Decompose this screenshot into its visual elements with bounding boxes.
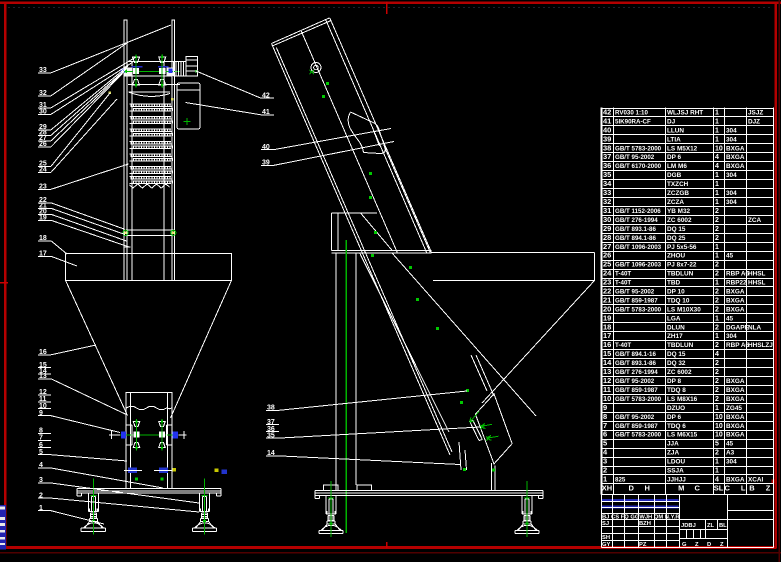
svg-text:2: 2: [715, 297, 719, 304]
svg-text:D: D: [628, 484, 634, 493]
svg-text:GB/T 1096-2003: GB/T 1096-2003: [615, 262, 662, 269]
svg-text:1: 1: [715, 172, 719, 179]
svg-text:GB/T 95-2002: GB/T 95-2002: [615, 414, 655, 421]
svg-text:SJ: SJ: [602, 521, 609, 527]
svg-text:BL: BL: [719, 523, 727, 529]
svg-text:GY: GY: [602, 542, 611, 548]
svg-text:D: D: [707, 542, 711, 548]
svg-text:XCAI: XCAI: [748, 476, 763, 483]
svg-text:2: 2: [715, 271, 719, 278]
svg-text:DP 10: DP 10: [667, 289, 685, 296]
svg-text:DJZ: DJZ: [748, 119, 760, 126]
svg-text:A3: A3: [726, 450, 735, 457]
svg-text:LS M10X30: LS M10X30: [667, 306, 701, 313]
svg-text:18: 18: [603, 322, 611, 331]
svg-text:GB/T 894.1-16: GB/T 894.1-16: [615, 351, 656, 358]
svg-text:12: 12: [603, 376, 611, 385]
svg-text:DP 6: DP 6: [667, 154, 682, 161]
svg-text:RBP A6: RBP A6: [726, 271, 750, 278]
svg-text:1: 1: [715, 315, 719, 322]
svg-text:5IK90RA-CF: 5IK90RA-CF: [615, 119, 651, 126]
svg-text:6: 6: [603, 430, 607, 439]
svg-text:4: 4: [715, 163, 719, 170]
svg-text:GB/T 1096-2003: GB/T 1096-2003: [615, 244, 662, 251]
svg-text:TXZCH: TXZCH: [667, 181, 689, 188]
svg-text:22: 22: [603, 287, 611, 296]
svg-text:BXGA: BXGA: [726, 423, 745, 430]
svg-text:20: 20: [603, 304, 611, 313]
svg-text:GB/T 894.1-86: GB/T 894.1-86: [615, 235, 656, 242]
svg-text:28: 28: [603, 233, 611, 242]
svg-text:G: G: [682, 542, 687, 548]
svg-text:31: 31: [603, 206, 611, 215]
svg-text:BXGA: BXGA: [726, 154, 745, 161]
svg-text:2: 2: [715, 226, 719, 233]
svg-text:PJ 8x7-22: PJ 8x7-22: [667, 262, 697, 269]
svg-text:4: 4: [715, 154, 719, 161]
svg-text:TBDLUN: TBDLUN: [667, 342, 694, 349]
svg-text:1: 1: [715, 253, 719, 260]
svg-text:27: 27: [603, 242, 611, 251]
svg-text:30: 30: [603, 215, 611, 224]
svg-text:45: 45: [726, 315, 734, 322]
svg-text:5: 5: [603, 439, 607, 448]
svg-text:BXGA: BXGA: [726, 163, 745, 170]
svg-text:1: 1: [715, 110, 719, 117]
svg-text:ZCZGB: ZCZGB: [667, 190, 689, 197]
svg-text:LS M5X12: LS M5X12: [667, 145, 698, 152]
svg-text:5: 5: [715, 441, 719, 448]
svg-text:1: 1: [715, 468, 719, 475]
svg-text:ZH17: ZH17: [667, 333, 683, 340]
svg-text:HHSL: HHSL: [748, 280, 765, 287]
svg-text:TDQ 10: TDQ 10: [667, 297, 690, 304]
svg-text:JJHJJ: JJHJJ: [667, 476, 686, 483]
svg-text:39: 39: [603, 134, 611, 143]
svg-text:2: 2: [715, 289, 719, 296]
svg-text:DQ 25: DQ 25: [667, 235, 686, 242]
svg-text:2: 2: [715, 378, 719, 385]
svg-text:2: 2: [715, 262, 719, 269]
svg-text:DGAPE: DGAPE: [726, 324, 749, 331]
svg-text:TBDLUN: TBDLUN: [667, 271, 694, 278]
svg-text:DQ 15: DQ 15: [667, 351, 686, 358]
svg-text:H: H: [644, 484, 649, 493]
svg-text:2: 2: [715, 369, 719, 376]
svg-text:14: 14: [603, 358, 612, 367]
svg-text:B: B: [749, 484, 755, 493]
svg-text:10: 10: [603, 394, 611, 403]
svg-text:ZC 6002: ZC 6002: [667, 369, 692, 376]
svg-text:ZJA: ZJA: [667, 450, 679, 457]
svg-text:T-40T: T-40T: [615, 342, 631, 349]
svg-text:JDBJ: JDBJ: [681, 523, 696, 529]
svg-text:DP 8: DP 8: [667, 378, 682, 385]
svg-text:2: 2: [715, 306, 719, 313]
svg-text:34: 34: [603, 179, 612, 188]
svg-text:41: 41: [603, 117, 611, 126]
svg-text:LM M6: LM M6: [667, 163, 687, 170]
svg-text:BXGA: BXGA: [726, 414, 745, 421]
svg-text:2: 2: [715, 450, 719, 457]
svg-text:GB/T 859-1987: GB/T 859-1987: [615, 423, 658, 430]
svg-text:ZCA: ZCA: [748, 217, 762, 224]
svg-text:BXGA: BXGA: [726, 145, 745, 152]
svg-text:32: 32: [603, 197, 611, 206]
svg-text:17: 17: [603, 331, 611, 340]
svg-text:GB/T 5783-2000: GB/T 5783-2000: [615, 306, 662, 313]
svg-text:19: 19: [603, 313, 611, 322]
svg-text:2: 2: [603, 466, 607, 475]
svg-text:C: C: [724, 484, 730, 493]
svg-text:BXGA: BXGA: [726, 289, 745, 296]
svg-text:304: 304: [726, 199, 737, 206]
svg-text:GB/T 95-2002: GB/T 95-2002: [615, 378, 655, 385]
svg-text:2: 2: [715, 387, 719, 394]
svg-text:BXGA: BXGA: [726, 297, 745, 304]
svg-text:304: 304: [726, 172, 737, 179]
svg-text:BXGA: BXGA: [726, 396, 745, 403]
svg-text:DZUO: DZUO: [667, 405, 685, 412]
svg-text:825: 825: [615, 476, 626, 483]
svg-text:4: 4: [715, 351, 719, 358]
svg-text:GB/T 5783-2000: GB/T 5783-2000: [615, 145, 662, 152]
svg-text:11: 11: [603, 385, 611, 394]
svg-text:DQ 15: DQ 15: [667, 226, 686, 233]
svg-text:1: 1: [715, 190, 719, 197]
svg-text:NLA: NLA: [748, 324, 762, 331]
svg-text:29: 29: [603, 224, 611, 233]
svg-text:HHSL: HHSL: [748, 271, 765, 278]
svg-text:10: 10: [715, 432, 723, 439]
svg-text:GB/T 893.1-86: GB/T 893.1-86: [615, 226, 656, 233]
svg-text:2: 2: [715, 396, 719, 403]
svg-text:1: 1: [715, 405, 719, 412]
svg-text:23: 23: [603, 278, 611, 287]
svg-text:45: 45: [726, 441, 734, 448]
svg-text:45: 45: [726, 253, 734, 260]
svg-text:GB/T 95-2002: GB/T 95-2002: [615, 289, 655, 296]
svg-text:YB M32: YB M32: [667, 208, 691, 215]
svg-text:XH: XH: [602, 484, 612, 493]
svg-text:RBP22: RBP22: [726, 280, 747, 287]
svg-text:2: 2: [715, 324, 719, 331]
svg-text:JSJZ: JSJZ: [748, 110, 763, 117]
svg-text:3: 3: [603, 457, 607, 466]
svg-text:38: 38: [603, 143, 611, 152]
svg-text:RV030 1:10: RV030 1:10: [615, 110, 648, 117]
svg-text:BJ CS FQ GGWJH QM N.Y.R: BJ CS FQ GGWJH QM N.Y.R: [602, 515, 680, 521]
svg-text:BXGA: BXGA: [726, 306, 745, 313]
svg-text:ZHOU: ZHOU: [667, 253, 685, 260]
svg-text:BZH: BZH: [639, 521, 651, 527]
svg-text:PZ: PZ: [639, 542, 647, 548]
svg-text:8: 8: [603, 412, 607, 421]
svg-text:1: 1: [715, 199, 719, 206]
svg-text:13: 13: [603, 367, 611, 376]
svg-text:TDQ 6: TDQ 6: [667, 423, 686, 430]
svg-text:ZL: ZL: [707, 523, 715, 529]
svg-text:DLUN: DLUN: [667, 324, 685, 331]
svg-text:GB/T 5783-2000: GB/T 5783-2000: [615, 396, 662, 403]
svg-text:GB/T 276-1994: GB/T 276-1994: [615, 217, 658, 224]
svg-text:TDQ 8: TDQ 8: [667, 387, 686, 394]
svg-text:SL: SL: [714, 484, 724, 493]
svg-text:M: M: [678, 484, 684, 493]
svg-text:10: 10: [715, 145, 723, 152]
svg-text:304: 304: [726, 333, 737, 340]
svg-text:BXGA: BXGA: [726, 432, 745, 439]
svg-text:304: 304: [726, 190, 737, 197]
svg-text:T-40T: T-40T: [615, 271, 631, 278]
svg-text:2: 2: [715, 360, 719, 367]
svg-text:WLJSJ RHT: WLJSJ RHT: [667, 110, 703, 117]
svg-text:BXGA: BXGA: [726, 387, 745, 394]
svg-text:Z: Z: [766, 484, 771, 493]
svg-text:DGB: DGB: [667, 172, 682, 179]
svg-text:36: 36: [603, 161, 611, 170]
svg-text:GB/T 893.1-86: GB/T 893.1-86: [615, 360, 656, 367]
svg-text:SH: SH: [602, 535, 610, 541]
svg-text:GB/T 859-1987: GB/T 859-1987: [615, 297, 658, 304]
svg-text:TBD: TBD: [667, 280, 681, 287]
svg-text:2: 2: [715, 208, 719, 215]
svg-text:SSJA: SSJA: [667, 468, 684, 475]
svg-text:JJA: JJA: [667, 441, 679, 448]
svg-text:GB/T 276-1994: GB/T 276-1994: [615, 369, 658, 376]
svg-text:GB/T 5783-2000: GB/T 5783-2000: [615, 432, 662, 439]
svg-text:Z: Z: [695, 542, 699, 548]
svg-text:PJ 5x5-56: PJ 5x5-56: [667, 244, 697, 251]
svg-text:2: 2: [715, 217, 719, 224]
svg-text:HHSLZJ: HHSLZJ: [748, 342, 773, 349]
svg-text:LS M6X15: LS M6X15: [667, 432, 698, 439]
svg-text:DQ 32: DQ 32: [667, 360, 686, 367]
svg-text:33: 33: [603, 188, 611, 197]
svg-text:1: 1: [715, 459, 719, 466]
svg-text:10: 10: [715, 414, 723, 421]
svg-text:LLUN: LLUN: [667, 127, 684, 134]
svg-text:1: 1: [603, 474, 607, 483]
svg-text:24: 24: [603, 269, 612, 278]
svg-text:LGA: LGA: [667, 315, 681, 322]
svg-text:7: 7: [603, 421, 607, 430]
svg-text:9: 9: [603, 403, 607, 412]
svg-text:RBP A6: RBP A6: [726, 342, 750, 349]
svg-text:2: 2: [715, 342, 719, 349]
svg-text:LDOU: LDOU: [667, 459, 685, 466]
svg-text:40: 40: [603, 125, 611, 134]
svg-text:304: 304: [726, 127, 737, 134]
svg-text:1: 1: [715, 333, 719, 340]
svg-text:1: 1: [715, 127, 719, 134]
svg-text:16: 16: [603, 340, 611, 349]
svg-text:GB/T 95-2002: GB/T 95-2002: [615, 154, 655, 161]
svg-text:1: 1: [715, 119, 719, 126]
svg-text:L: L: [741, 484, 746, 493]
svg-text:26: 26: [603, 251, 611, 260]
svg-text:4: 4: [715, 476, 719, 483]
svg-text:ZC 6002: ZC 6002: [667, 217, 692, 224]
svg-text:1: 1: [715, 244, 719, 251]
svg-text:304: 304: [726, 136, 737, 143]
svg-text:GB/T 859-1987: GB/T 859-1987: [615, 387, 658, 394]
svg-text:LS M8X16: LS M8X16: [667, 396, 698, 403]
svg-text:LTIA: LTIA: [667, 136, 681, 143]
svg-text:DP 6: DP 6: [667, 414, 682, 421]
svg-text:42: 42: [603, 108, 611, 117]
svg-text:2: 2: [715, 235, 719, 242]
svg-text:37: 37: [603, 152, 611, 161]
svg-text:BXGA: BXGA: [726, 378, 745, 385]
svg-text:DJ: DJ: [667, 119, 676, 126]
svg-text:1: 1: [715, 181, 719, 188]
svg-text:1: 1: [715, 280, 719, 287]
svg-text:21: 21: [603, 295, 611, 304]
svg-text:ZCZA: ZCZA: [667, 199, 684, 206]
svg-text:T-40T: T-40T: [615, 280, 631, 287]
svg-text:304: 304: [726, 459, 737, 466]
svg-text:GB/T 6170-2000: GB/T 6170-2000: [615, 163, 662, 170]
svg-text:15: 15: [603, 349, 611, 358]
svg-text:C: C: [694, 484, 700, 493]
svg-text:1: 1: [715, 136, 719, 143]
svg-text:ZG45: ZG45: [726, 405, 742, 412]
svg-text:35: 35: [603, 170, 611, 179]
svg-text:GB/T 1152-2006: GB/T 1152-2006: [615, 208, 661, 215]
svg-text:BXGA: BXGA: [726, 476, 745, 483]
svg-text:Z: Z: [720, 542, 724, 548]
svg-text:10: 10: [715, 423, 723, 430]
svg-text:25: 25: [603, 260, 611, 269]
